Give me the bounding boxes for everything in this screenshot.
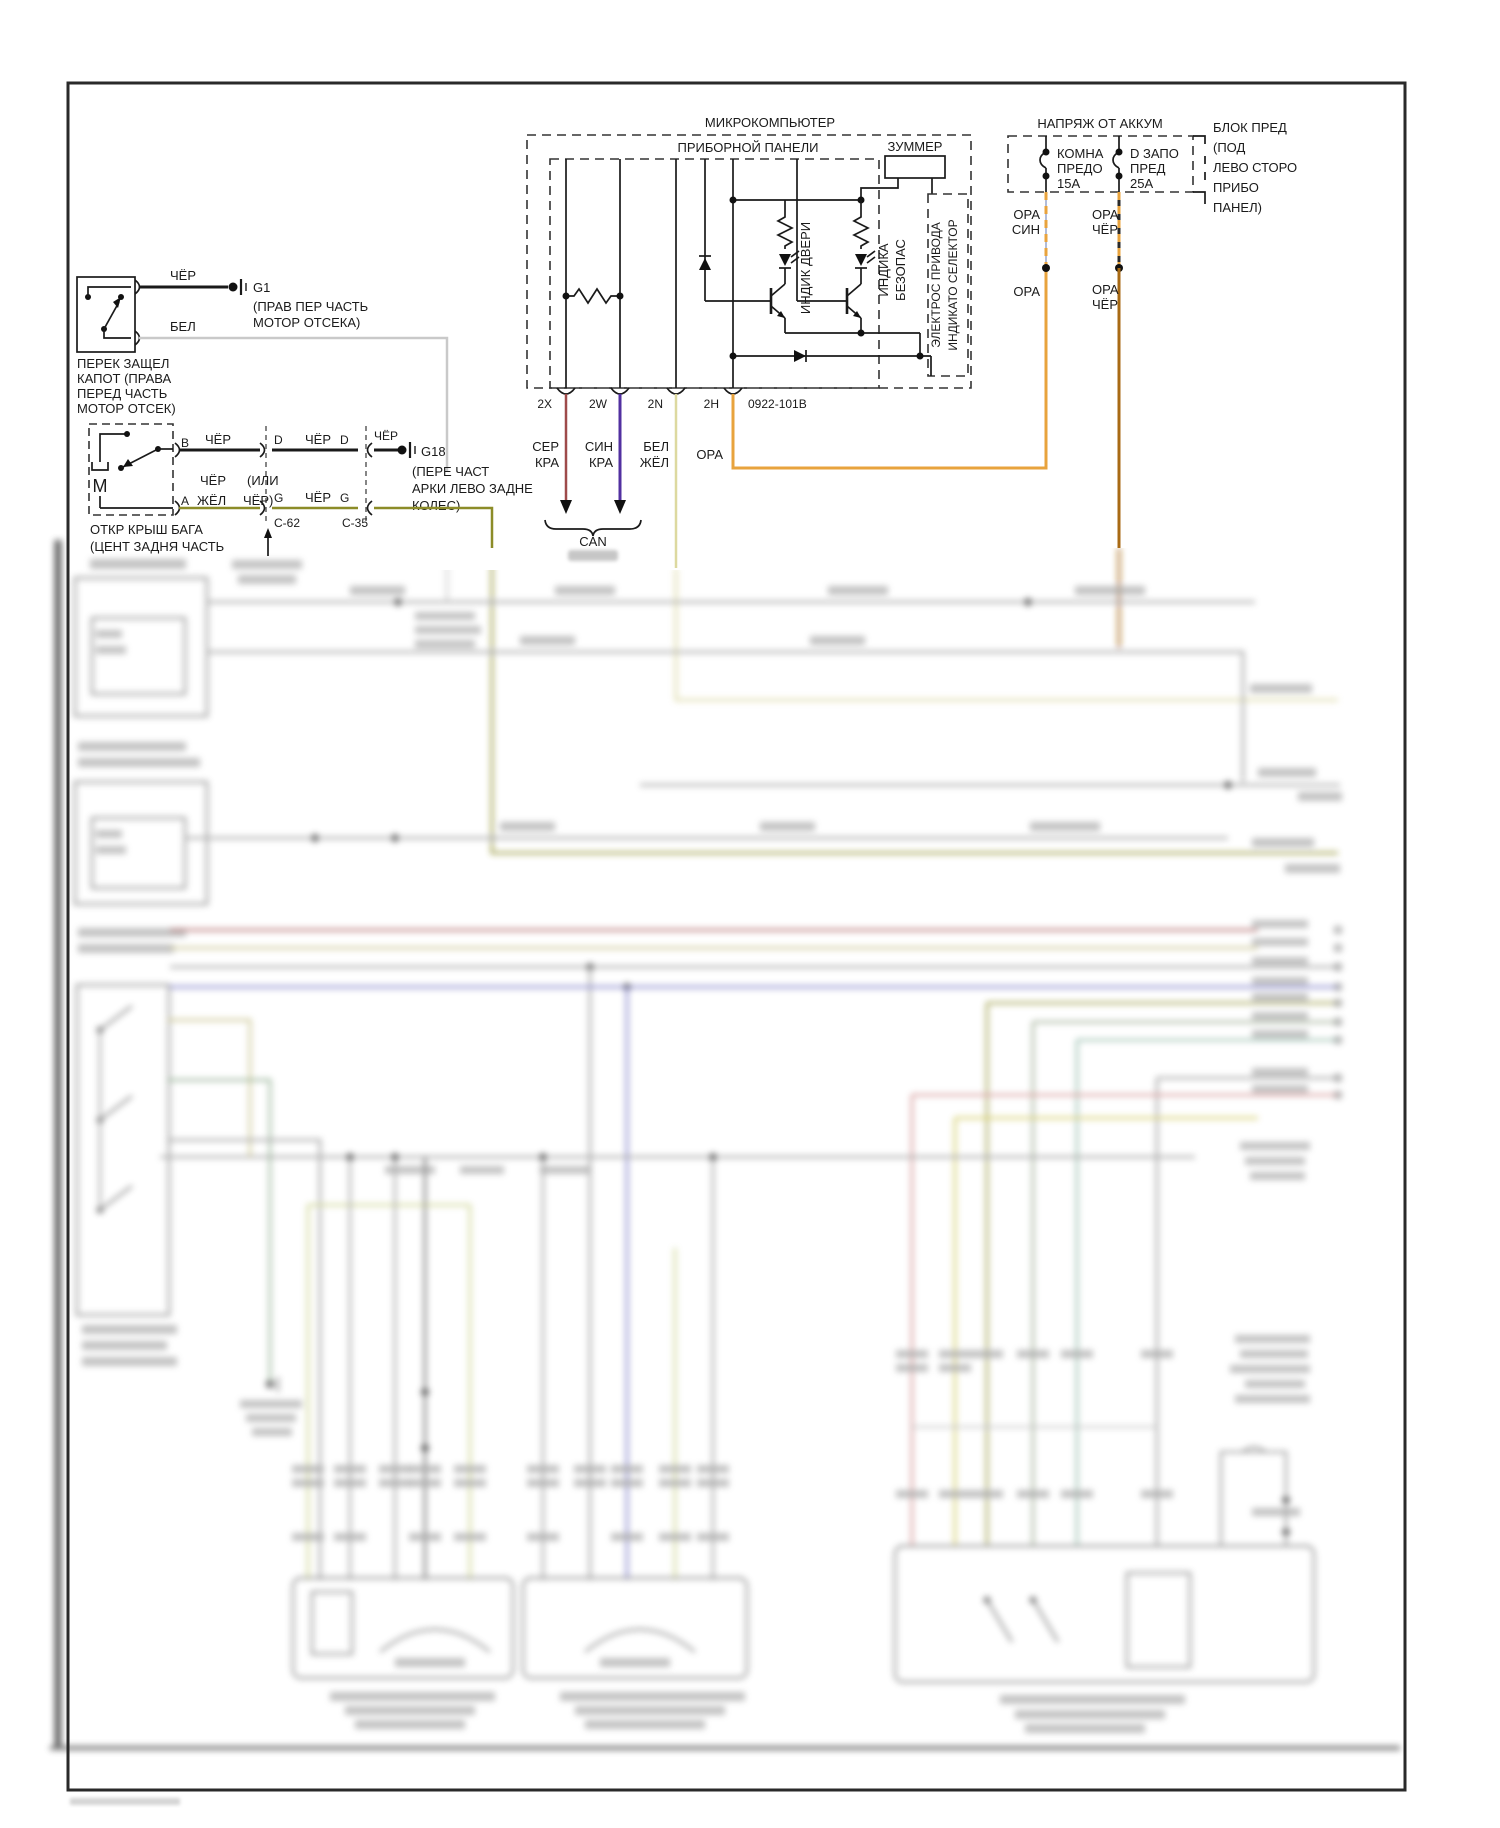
fuse2-line3: 25А: [1130, 176, 1153, 191]
blurred-lower-diagram: [50, 472, 1400, 1748]
power-title: НАПРЯЖ ОТ АККУМ: [1037, 116, 1162, 131]
ground-icon: [229, 283, 238, 292]
wire-2w-color-1: СИН: [585, 439, 613, 454]
buzzer-label: ЗУММЕР: [888, 139, 943, 154]
motor-label: М: [93, 476, 108, 496]
trunk-seg3-label: ЧЁР: [374, 429, 398, 443]
fuse2-line1: D ЗАПО: [1130, 146, 1179, 161]
trunk-label-2: (ЦЕНТ ЗАДНЯ ЧАСТЬ: [90, 539, 224, 554]
footer-note-blob: [70, 1798, 180, 1805]
trunk-label-1: ОТКР КРЫШ БАГА: [90, 522, 203, 537]
pin-g1: G: [274, 491, 283, 505]
trunk-alt-1a: ЧЁР: [200, 473, 226, 488]
fusebox-note-1: БЛОК ПРЕД: [1213, 120, 1287, 135]
safety-indicator-label-1: ИНДИКА: [876, 243, 891, 296]
safety-indicator-label-2: БЕЗОПАС: [893, 239, 908, 301]
fusebox-note-5: ПАНЕЛ): [1213, 200, 1262, 215]
ground-icon: [398, 446, 407, 455]
fusebox-note-2: (ПОД: [1213, 140, 1245, 155]
selector-drive-label-2: ИНДИКАТО СЕЛЕКТОР: [946, 219, 960, 350]
trunk-alt-2b: ЧЁР): [243, 493, 273, 508]
pin-2h: 2H: [704, 397, 719, 411]
w2a-2: ЧЁР: [1092, 222, 1118, 237]
w2b-2: ЧЁР: [1092, 297, 1118, 312]
g1-note-2: МОТОР ОТСЕКА): [253, 315, 360, 330]
hood-label-3: ПЕРЕД ЧАСТЬ: [77, 386, 167, 401]
connector-c62: C-62: [274, 516, 300, 530]
wire-2n-color-1: БЕЛ: [643, 439, 669, 454]
up-arrow-icon: [264, 528, 272, 538]
pin-d2: D: [340, 433, 349, 447]
fusebox-note-3: ЛЕВО СТОРО: [1213, 160, 1297, 175]
connector-code: 0922-101B: [748, 397, 807, 411]
g18-note-1: (ПЕРЕ ЧАСТ: [412, 464, 489, 479]
wiring-diagram-page: МИКРОКОМПЬЮТЕР ПРИБОРНОЙ ПАНЕЛИ ЗУММЕР Э…: [0, 0, 1500, 1828]
hood-label-1: ПЕРЕК ЗАЩЕЛ: [77, 356, 169, 371]
pin-a: А: [181, 494, 189, 508]
hood-label-4: МОТОР ОТСЕК): [77, 401, 176, 416]
trunk-alt-2a: ЖЁЛ: [197, 493, 226, 508]
fuse1-line2: ПРЕДО: [1057, 161, 1103, 176]
ground-g18: G18: [421, 444, 446, 459]
blurred-word: [568, 550, 618, 561]
g18-note-2: АРКИ ЛЕВО ЗАДНЕ: [412, 481, 533, 496]
trunk-seg1-label: ЧЁР: [205, 432, 231, 447]
trunk-seg4-label: ЧЁР: [305, 490, 331, 505]
g1-note-1: (ПРАВ ПЕР ЧАСТЬ: [253, 299, 368, 314]
orange-pocket-backing: [990, 470, 1170, 548]
selector-drive-label-1: ЭЛЕКТРОС ПРИВОДА: [929, 222, 943, 348]
pin-d1: D: [274, 433, 283, 447]
wire-2n-color-2: ЖЁЛ: [640, 455, 669, 470]
w2a-1: ОРА: [1092, 207, 1119, 222]
fusebox-note-4: ПРИБО: [1213, 180, 1259, 195]
hood-wire-bottom-label: БЕЛ: [170, 319, 196, 334]
pin-b: B: [181, 436, 189, 450]
fuse2-line2: ПРЕД: [1130, 161, 1166, 176]
microcomputer-subtitle: ПРИБОРНОЙ ПАНЕЛИ: [678, 140, 819, 155]
wire-2h-color: ОРА: [696, 447, 723, 462]
wire-2x-color-1: СЕР: [532, 439, 559, 454]
wire-2w-color-2: КРА: [589, 455, 613, 470]
w1b: ОРА: [1013, 284, 1040, 299]
ground-g1: G1: [253, 280, 270, 295]
trunk-alt-1b: (ИЛИ: [247, 473, 279, 488]
can-label: CAN: [579, 534, 606, 549]
microcomputer-title: МИКРОКОМПЬЮТЕР: [705, 115, 835, 130]
pin-2n: 2N: [648, 397, 663, 411]
w1a-2: СИН: [1012, 222, 1040, 237]
wire-2x-color-2: КРА: [535, 455, 559, 470]
w2b-1: ОРА: [1092, 282, 1119, 297]
pin-2w: 2W: [589, 397, 608, 411]
fuse1-line3: 15А: [1057, 176, 1080, 191]
pin-2x: 2X: [537, 397, 552, 411]
hood-label-2: КАПОТ (ПРАВА: [77, 371, 171, 386]
trunk-seg2-label: ЧЁР: [305, 432, 331, 447]
pin-g2: G: [340, 491, 349, 505]
connector-c35: C-35: [342, 516, 368, 530]
w1a-1: ОРА: [1013, 207, 1040, 222]
hood-wire-top-label: ЧЁР: [170, 268, 196, 283]
fuse1-line1: КОМНА: [1057, 146, 1104, 161]
g18-note-3: КОЛЕС): [412, 498, 460, 513]
